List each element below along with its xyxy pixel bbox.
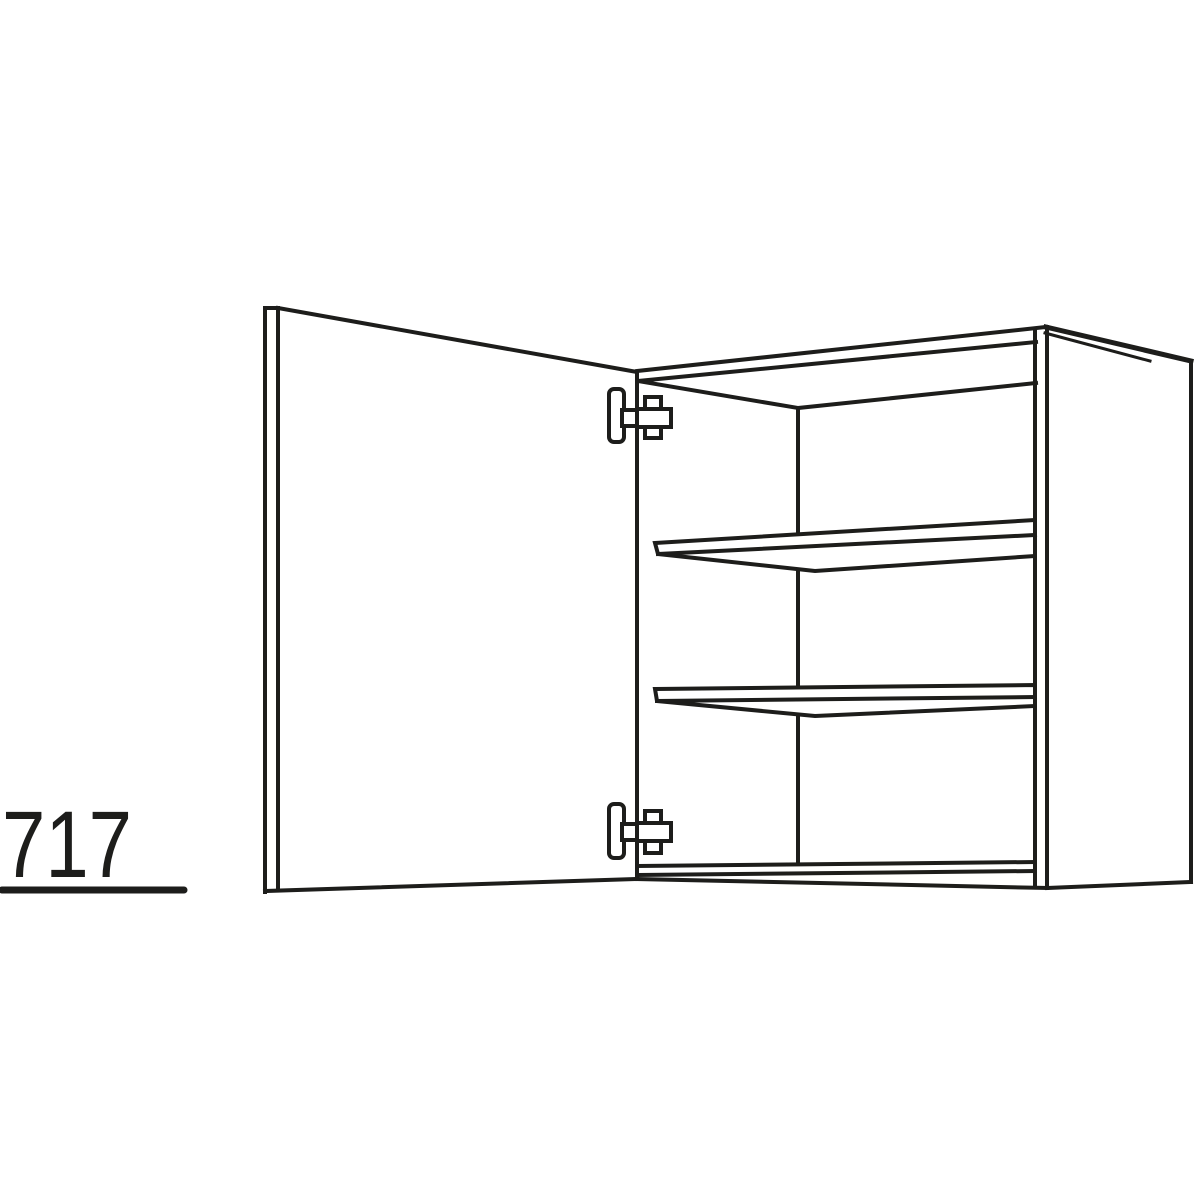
shelf-lower	[655, 685, 1035, 716]
top-right-edge	[1046, 327, 1191, 361]
bottom-interior-front-edge	[638, 862, 1035, 866]
cabinet-technical-drawing: 717	[0, 0, 1200, 1200]
bottom-front-outer-edge	[637, 879, 1047, 888]
cabinet-door	[265, 308, 637, 892]
shelf-upper	[655, 520, 1035, 571]
bottom-interior-lower-edge	[638, 871, 1035, 875]
cabinet-carcass	[637, 327, 1191, 888]
hinge-top-cup-horizontal	[637, 409, 671, 427]
hinge-bottom	[609, 804, 671, 858]
cabinet-front-right-corner	[1035, 327, 1047, 887]
top-back-interior-edge	[798, 383, 1036, 408]
dimension-annotation: 717	[2, 792, 184, 898]
door-top-edge	[278, 308, 637, 372]
right-panel-bottom-edge	[1047, 882, 1191, 888]
hinge-bottom-cup-horizontal	[637, 823, 671, 841]
hinge-top	[609, 389, 671, 442]
dimension-label: 717	[2, 792, 132, 898]
diagram-canvas: 717	[0, 0, 1200, 1200]
door-bottom-edge	[265, 879, 637, 891]
